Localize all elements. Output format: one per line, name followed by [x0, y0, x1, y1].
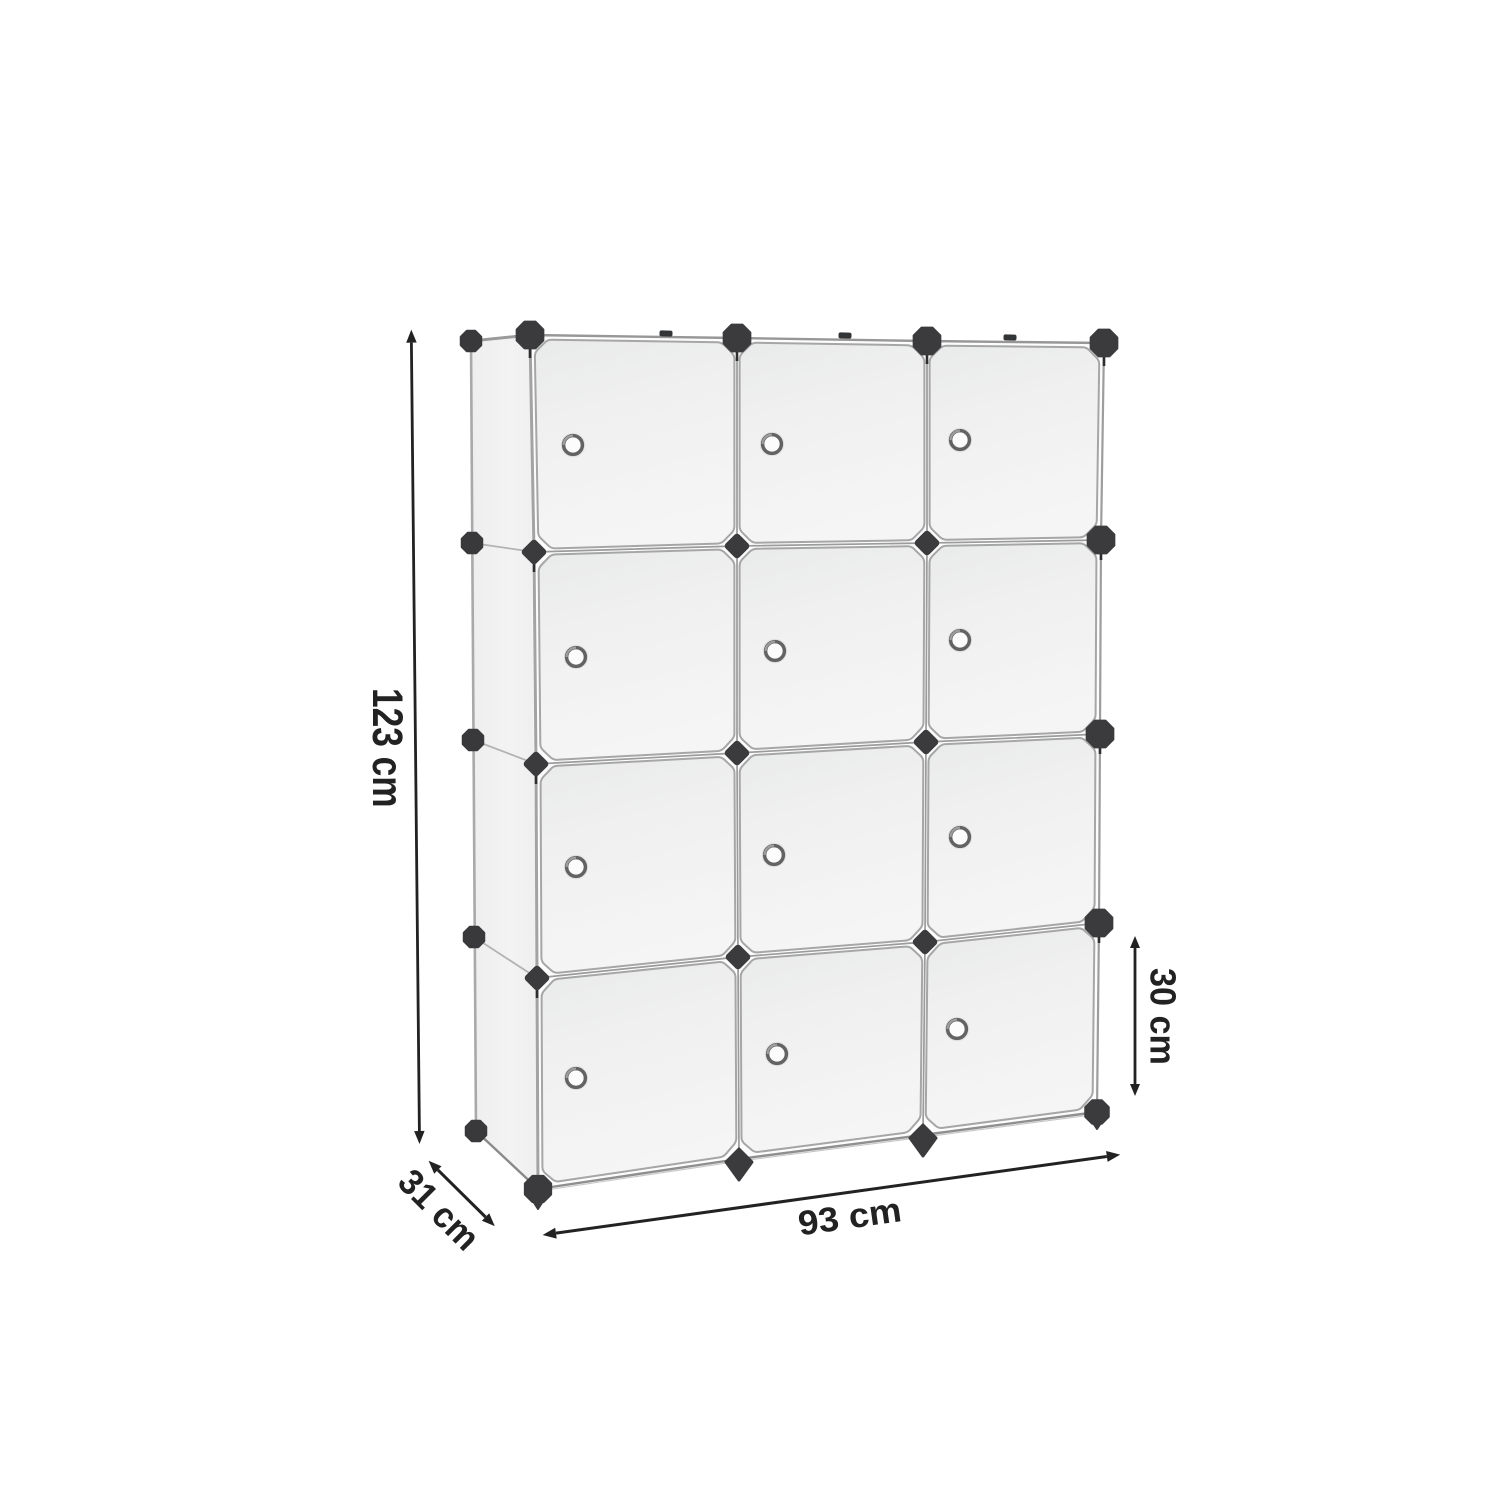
- svg-text:123 cm: 123 cm: [363, 688, 411, 808]
- svg-text:30 cm: 30 cm: [1142, 968, 1182, 1065]
